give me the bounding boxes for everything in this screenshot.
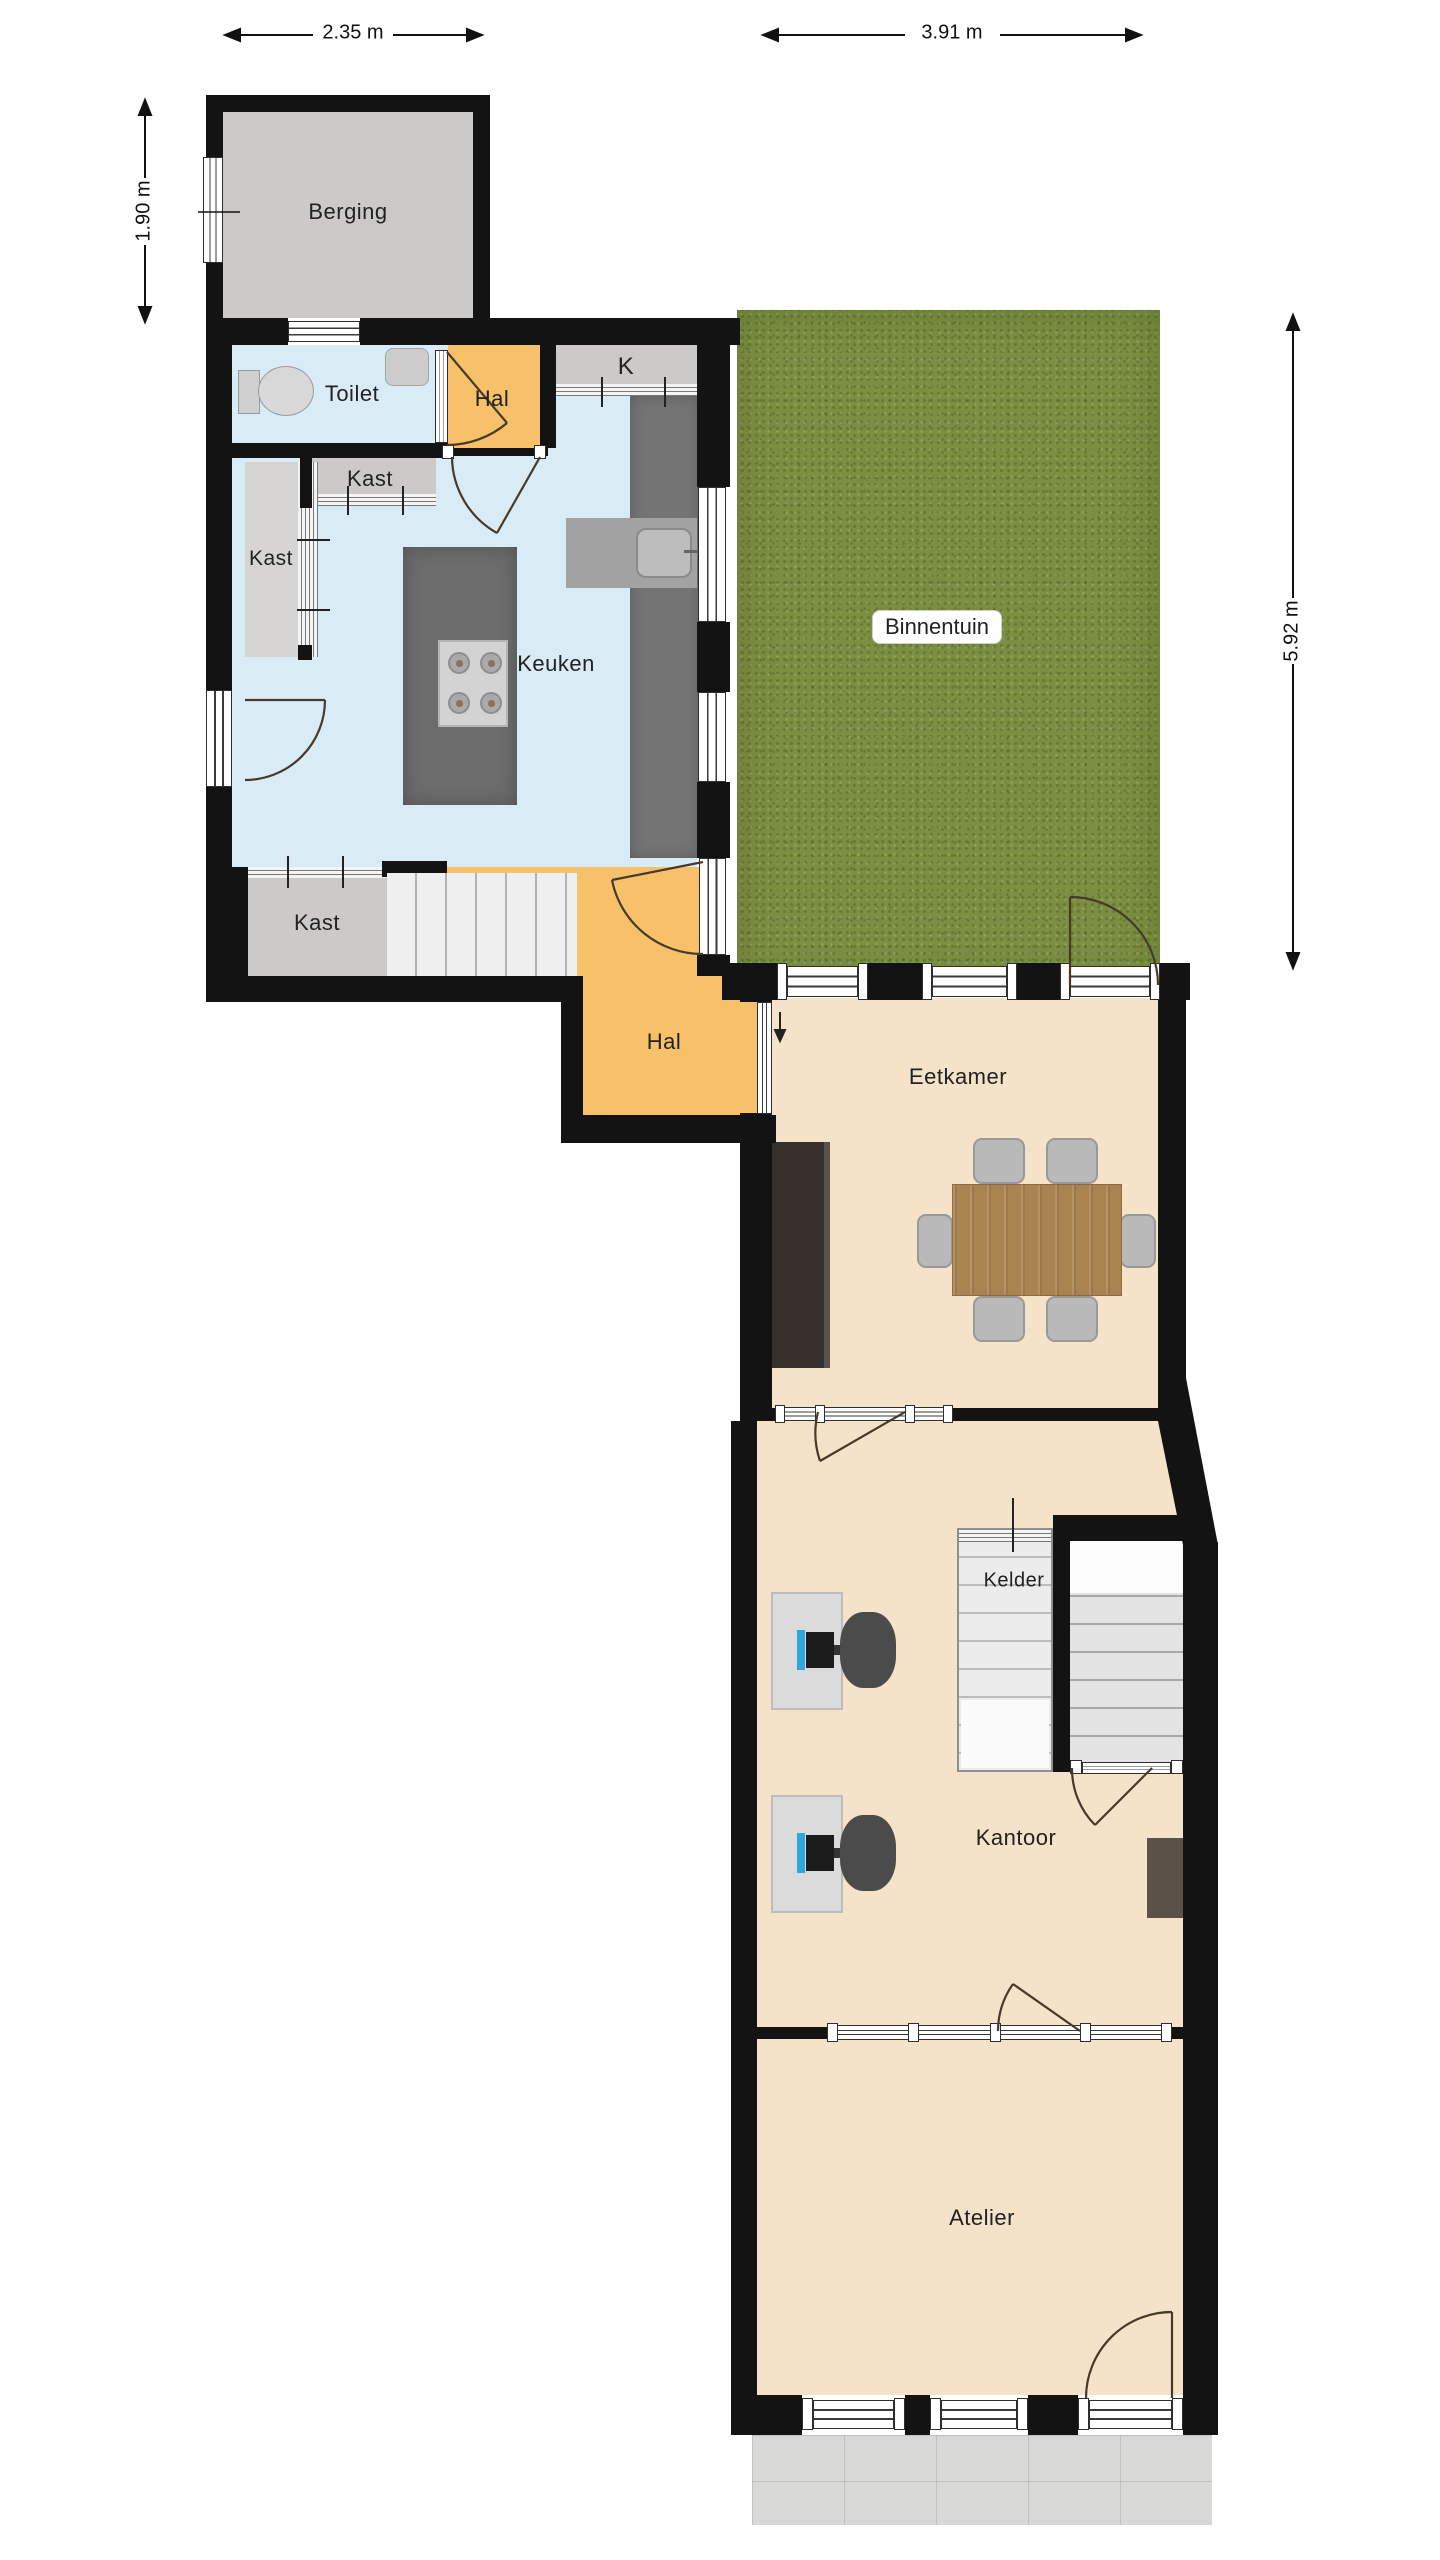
room-label-kast-bottom: Kast	[294, 910, 340, 936]
annotation-overlay	[0, 0, 1440, 2560]
room-label-hal-top: Hal	[475, 386, 510, 412]
room-label-eetkamer: Eetkamer	[909, 1064, 1007, 1090]
room-label-toilet: Toilet	[325, 381, 379, 407]
room-label-kantoor: Kantoor	[976, 1825, 1057, 1851]
dimension-label-right: 5.92 m	[1281, 600, 1304, 661]
door-arc-stairs-kantoor	[1072, 1768, 1152, 1825]
door-arc-hal-garden	[612, 862, 703, 954]
room-label-kelder: Kelder	[984, 1570, 1045, 1593]
door-swing-arcs	[245, 352, 1172, 2398]
room-label-berging: Berging	[308, 199, 387, 225]
floor-plan: Berging Toilet Hal K Kast Kast Keuken Bi…	[0, 0, 1440, 2560]
door-arc-atelier	[1086, 2312, 1172, 2398]
room-label-hal-bottom: Hal	[647, 1029, 682, 1055]
room-label-kast-left: Kast	[249, 547, 293, 571]
room-label-binnentuin: Binnentuin	[872, 610, 1002, 644]
room-label-kast-top: Kast	[347, 466, 393, 492]
dimension-lines	[139, 29, 1299, 968]
door-arc-hal-keuken	[452, 457, 540, 533]
door-arc-eetkamer-kantoor	[815, 1412, 905, 1461]
dimension-label-top-left: 2.35 m	[322, 22, 383, 45]
slide-ticks	[288, 377, 1013, 1552]
room-label-keuken: Keuken	[517, 651, 595, 677]
door-arc-garden	[1070, 897, 1158, 985]
step-arrow-icon	[775, 1012, 785, 1041]
dimension-label-top-right: 3.91 m	[921, 22, 982, 45]
dimension-label-left: 1.90 m	[133, 180, 156, 241]
slanted-wall	[1158, 1378, 1218, 1545]
room-label-k: K	[618, 353, 635, 381]
door-arc-kantoor-atelier	[998, 1984, 1080, 2031]
door-arc-entry	[245, 700, 325, 780]
room-label-atelier: Atelier	[949, 2205, 1015, 2231]
